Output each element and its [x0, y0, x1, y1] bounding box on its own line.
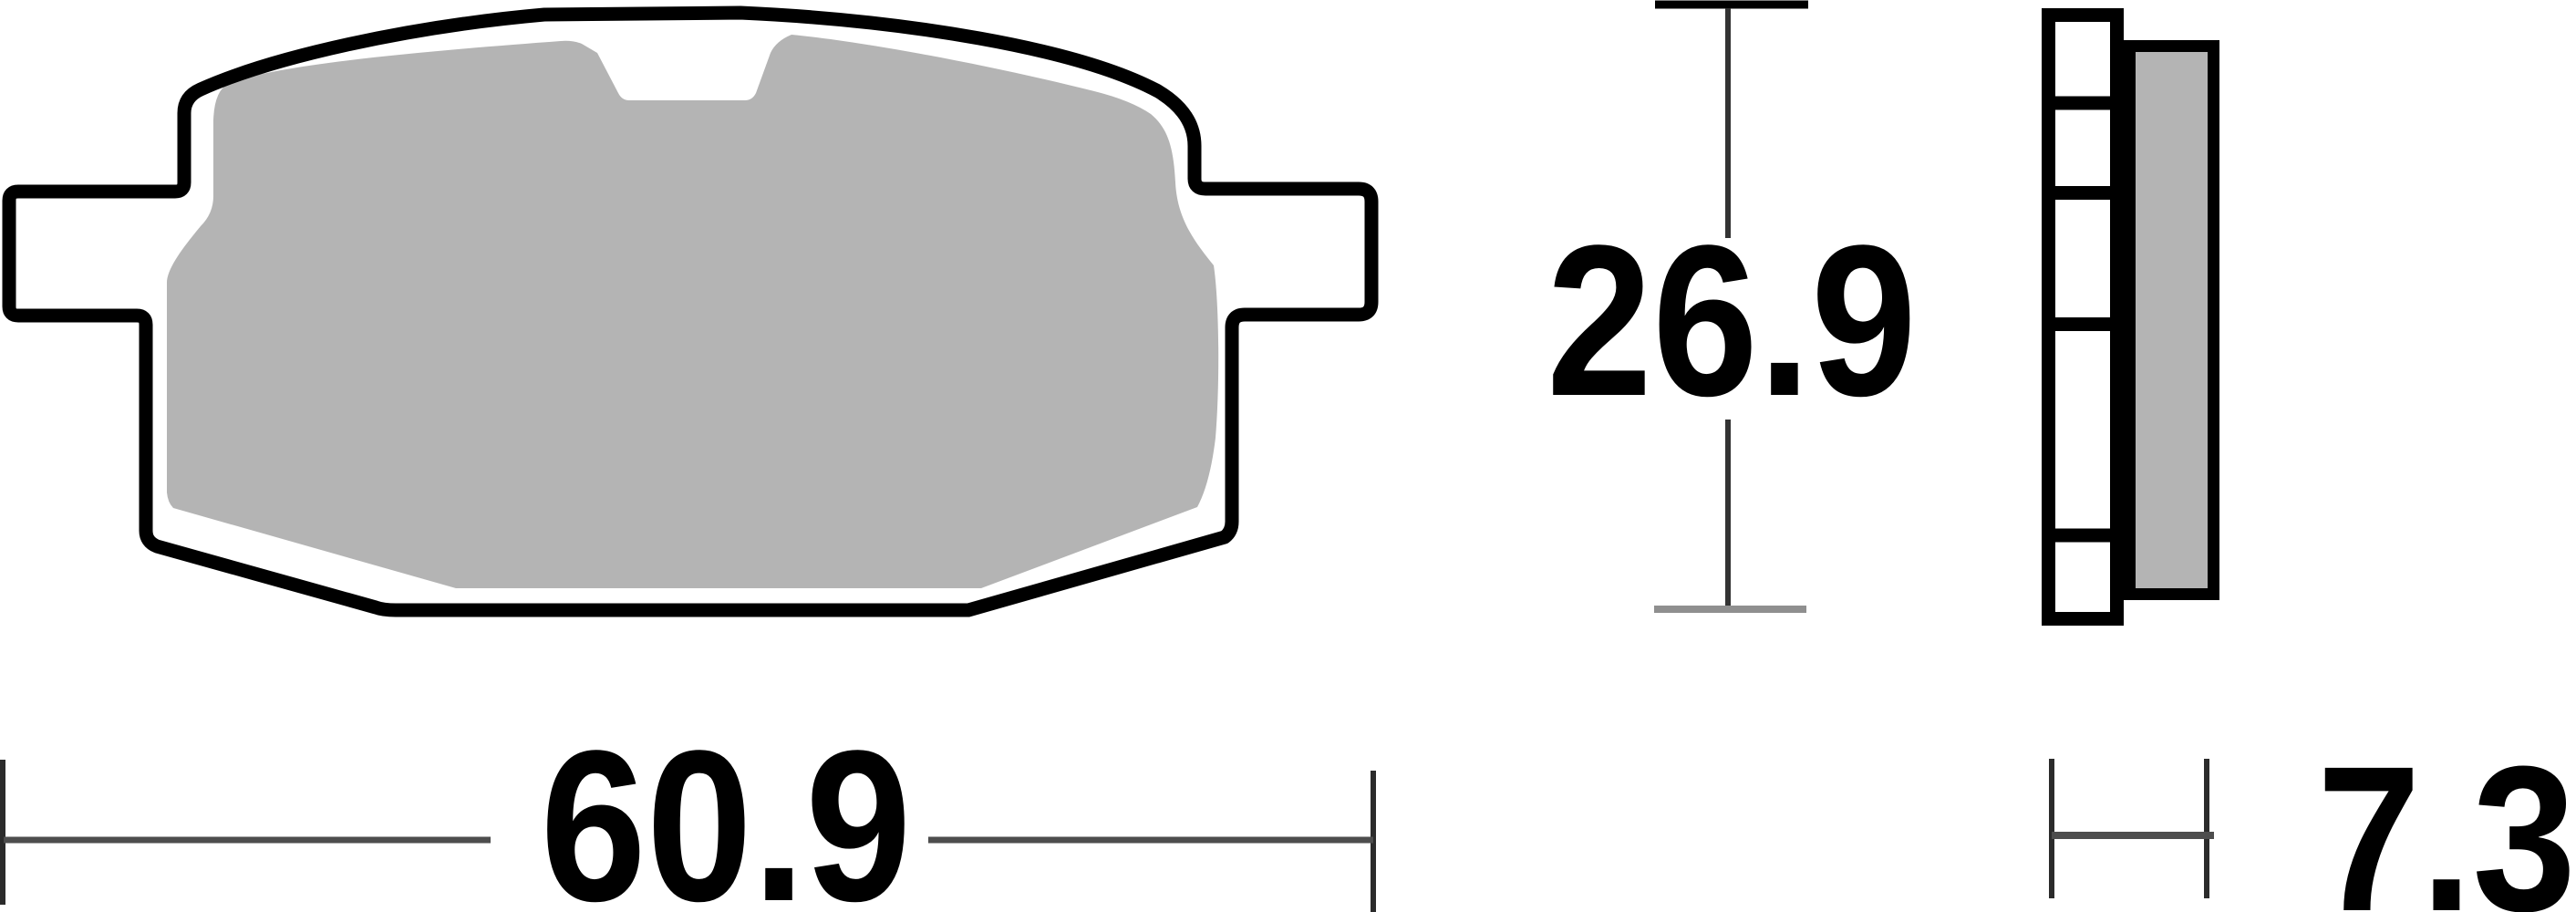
svg-text:26.9: 26.9 — [1547, 201, 1917, 441]
svg-text:7.3: 7.3 — [2317, 724, 2576, 912]
svg-text:60.9: 60.9 — [541, 706, 912, 912]
